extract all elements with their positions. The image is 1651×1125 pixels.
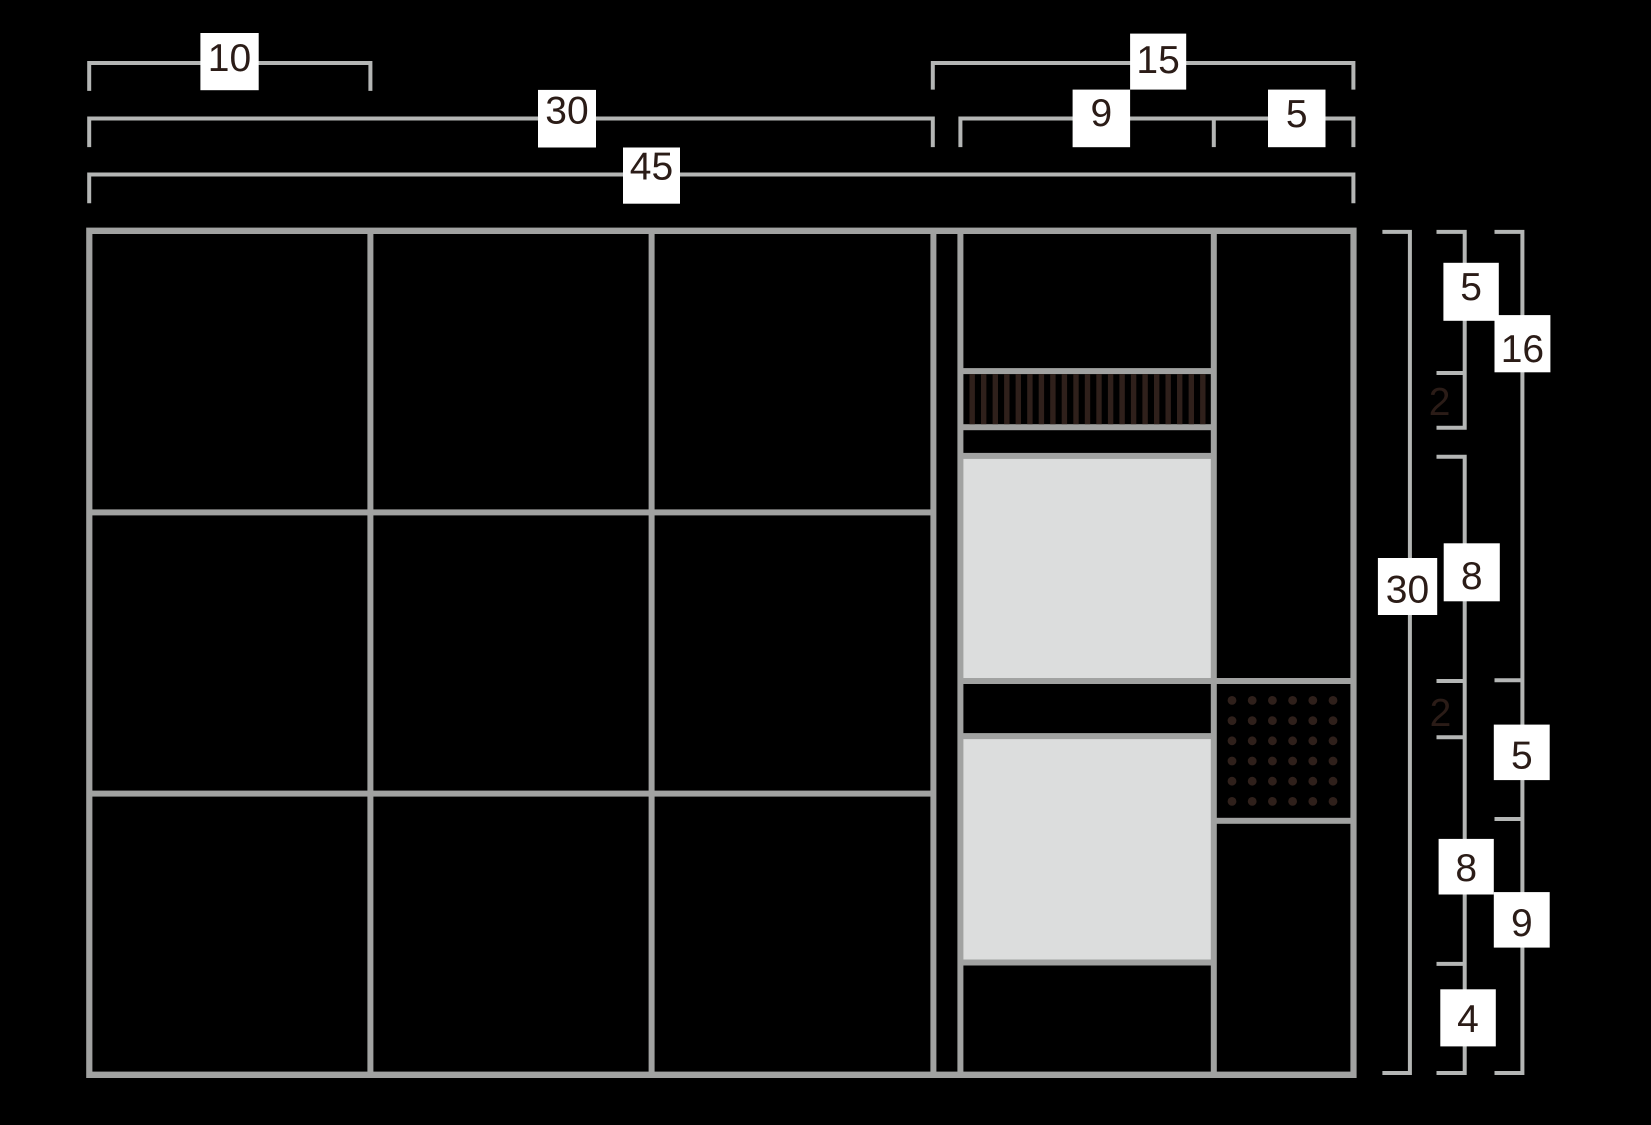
svg-text:5: 5 [1460, 266, 1482, 309]
svg-text:45: 45 [630, 146, 673, 189]
svg-text:5: 5 [1286, 93, 1308, 136]
svg-text:5: 5 [1511, 735, 1533, 778]
svg-text:4: 4 [1457, 998, 1479, 1041]
svg-text:9: 9 [1511, 902, 1533, 945]
svg-text:15: 15 [1136, 39, 1179, 82]
svg-text:8: 8 [1455, 847, 1477, 890]
svg-text:2: 2 [1429, 381, 1451, 424]
svg-text:10: 10 [208, 37, 251, 80]
svg-text:16: 16 [1501, 328, 1544, 371]
svg-text:9: 9 [1090, 92, 1112, 135]
svg-text:2: 2 [1430, 692, 1452, 735]
svg-text:30: 30 [545, 89, 588, 132]
svg-text:8: 8 [1461, 555, 1483, 598]
svg-text:30: 30 [1386, 569, 1429, 612]
